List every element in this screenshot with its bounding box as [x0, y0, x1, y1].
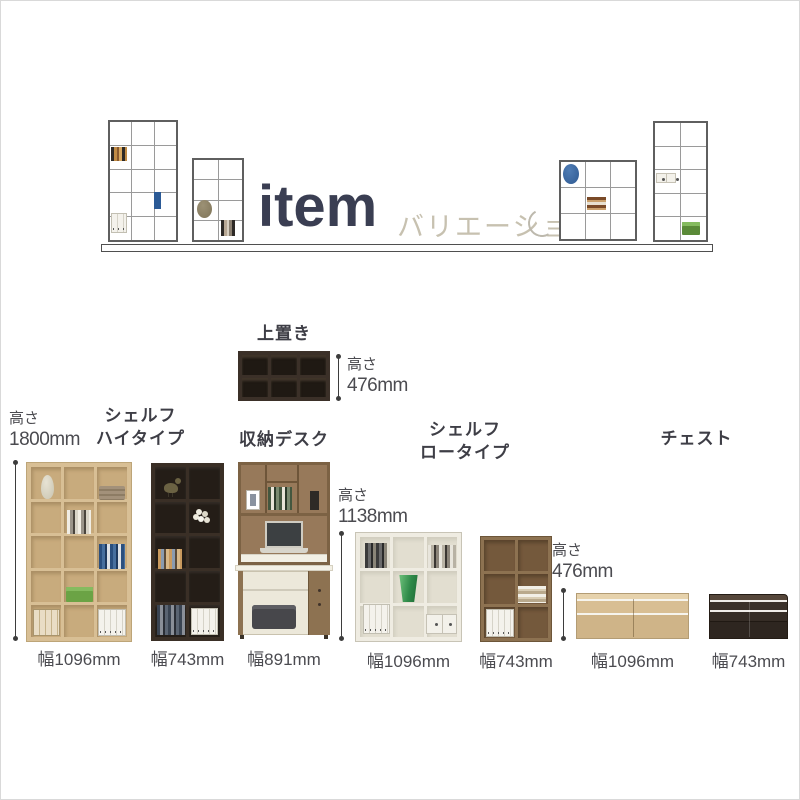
decor-books-icon	[365, 543, 387, 568]
product-image-shelf-high-narrow	[151, 463, 224, 641]
product-title-top-unit: 上置き	[238, 323, 330, 346]
shelf-cell	[64, 536, 94, 568]
shelf-cell	[242, 378, 268, 398]
shelf-cell	[64, 605, 94, 637]
shelf-cell	[655, 123, 680, 146]
decor-book-icon	[154, 192, 161, 209]
shelf-cell	[155, 571, 186, 603]
decor-binders-icon	[111, 213, 127, 233]
decor-binders-icon	[191, 608, 218, 635]
shelf-cell	[155, 122, 176, 145]
decor-boxes-icon	[656, 173, 676, 183]
shelf-cell	[360, 571, 390, 602]
desk-shelf-line	[241, 513, 327, 516]
shelf-cell	[219, 180, 243, 199]
width-label-chest-narrow: 幅743mm	[706, 647, 791, 672]
decor-boxes-icon	[426, 614, 457, 634]
dimension-label-chest-height: 高さ 476mm	[552, 543, 613, 582]
shelf-cell	[31, 536, 61, 568]
decor-greenbox-icon	[66, 587, 93, 602]
brand-title: item	[258, 178, 377, 236]
dimension-label-shelf-high-height: 高さ 1800mm	[9, 411, 80, 450]
decor-books-icon	[221, 220, 235, 236]
product-image-chest-narrow	[709, 594, 788, 639]
shelf-cell	[271, 378, 297, 398]
desk-left-panel	[238, 571, 243, 635]
decor-books-icon	[99, 544, 125, 569]
shelf-cell	[681, 147, 706, 170]
decor-basket-icon	[99, 486, 125, 500]
shelf-cell	[189, 571, 220, 603]
shelf-cell	[655, 147, 680, 170]
shelf-cell	[132, 122, 153, 145]
shelf-cell	[300, 378, 326, 398]
product-title-shelf-low: シェルフ ロータイプ	[399, 419, 531, 465]
dimension-label-shelf-low-height: 高さ 1138mm	[338, 488, 408, 527]
shelf-cell	[681, 194, 706, 217]
shelf-cell	[561, 188, 585, 213]
decor-stack-icon	[518, 586, 546, 603]
shelf-cell	[655, 194, 680, 217]
width-label-shelf-high-wide: 幅1096mm	[25, 645, 133, 670]
title-line1: シェルフ	[105, 406, 177, 425]
shelf-cell	[393, 606, 423, 637]
decor-vase-icon	[41, 475, 54, 499]
decor-vase-icon	[197, 200, 212, 218]
decor-bird-icon	[164, 483, 178, 493]
shelf-cell	[300, 355, 326, 375]
shelf-cell	[484, 540, 515, 571]
shelf-cell	[31, 571, 61, 603]
decor-stack-icon	[587, 197, 606, 210]
shelf-cell	[132, 217, 153, 240]
width-label-shelf-low-narrow: 幅743mm	[478, 647, 554, 672]
shelf-cell	[110, 170, 131, 193]
product-image-desk	[238, 462, 330, 640]
shelf-cell	[681, 123, 706, 146]
product-image-chest-wide	[576, 593, 689, 639]
shelf-cell	[681, 170, 706, 193]
shelf-cell	[132, 193, 153, 216]
product-title-shelf-high: シェルフ ハイタイプ	[73, 405, 208, 451]
height-value: 1138mm	[338, 507, 408, 528]
width-label-shelf-high-narrow: 幅743mm	[149, 645, 226, 670]
shelf-cell	[189, 467, 220, 499]
shelf-cell	[611, 162, 635, 187]
shelf-cell	[155, 170, 176, 193]
desk-divider	[265, 481, 299, 483]
decor-binder-icon	[310, 491, 319, 510]
shelf-cell	[31, 502, 61, 534]
shelf-cell	[427, 571, 457, 602]
decor-books-icon	[157, 605, 185, 635]
product-image-top-unit	[238, 351, 330, 401]
desk-feet	[238, 635, 330, 639]
height-value: 1800mm	[9, 430, 80, 451]
shelf-cell	[194, 180, 218, 199]
decor-binders-icon	[98, 609, 126, 636]
title-line1: シェルフ	[429, 420, 501, 439]
height-value: 476mm	[552, 562, 613, 583]
shelf-cell	[189, 536, 220, 568]
shelf-cell	[155, 146, 176, 169]
decor-binders-icon	[363, 604, 390, 634]
shelf-cell	[132, 170, 153, 193]
shelf-cell	[194, 160, 218, 179]
shelf-cell	[393, 537, 423, 568]
product-title-desk: 収納デスク	[226, 429, 342, 452]
decor-books-icon	[67, 510, 91, 534]
shelf-cell	[110, 122, 131, 145]
desk-pullout-surface	[241, 554, 327, 562]
decor-flowers-icon	[196, 509, 202, 515]
shelf-cell	[194, 221, 218, 240]
width-label-chest-wide: 幅1096mm	[573, 647, 692, 672]
decor-shelf-grid-2	[192, 158, 244, 242]
title-line2: ロータイプ	[420, 443, 510, 462]
decor-books-icon	[158, 549, 182, 569]
height-label: 高さ	[338, 488, 408, 505]
decor-binders-icon	[486, 609, 514, 637]
width-label-shelf-low-wide: 幅1096mm	[352, 647, 465, 672]
shelf-cell	[64, 467, 94, 499]
product-image-shelf-high-wide	[27, 463, 131, 641]
shelf-cell	[611, 214, 635, 239]
decor-books-icon	[428, 545, 456, 568]
decor-greenbox-icon	[682, 222, 700, 235]
dimension-line-chest-height	[563, 590, 564, 639]
desk-divider	[297, 465, 299, 513]
product-image-shelf-low-wide	[356, 533, 461, 641]
shelf-cell	[155, 217, 176, 240]
decor-binders-icon	[33, 609, 60, 636]
dimension-line-shelf-high-height	[15, 462, 16, 639]
decor-books-icon	[268, 487, 292, 510]
desk-divider	[265, 465, 267, 513]
shelf-cell	[518, 540, 549, 571]
product-image-shelf-low-narrow	[481, 537, 551, 641]
shelf-cell	[561, 214, 585, 239]
shelf-cell	[97, 502, 127, 534]
shelf-cell	[586, 214, 610, 239]
decor-picture-frame-icon	[246, 490, 260, 510]
product-title-chest: チェスト	[639, 428, 754, 451]
printer-icon	[252, 605, 296, 629]
shelf-cell	[132, 146, 153, 169]
height-label: 高さ	[347, 357, 408, 374]
item-variation-banner: item バリエーション 上置き 高さ 476mm 高さ 1800mm シェルフ…	[0, 0, 800, 800]
decor-books-icon	[111, 147, 127, 161]
desk-side-cabinet	[308, 571, 330, 635]
decor-vase-icon	[563, 164, 579, 184]
shelf-cell	[97, 571, 127, 603]
title-line2: ハイタイプ	[96, 429, 185, 448]
dimension-line-top-unit-height	[338, 356, 339, 399]
shelf-cell	[155, 502, 186, 534]
height-value: 476mm	[347, 376, 408, 397]
shelf-cell	[586, 162, 610, 187]
shelf-cell	[242, 355, 268, 375]
shelf-cell	[484, 574, 515, 605]
laptop-base	[260, 548, 308, 553]
shelf-cell	[219, 201, 243, 220]
width-label-desk: 幅891mm	[236, 645, 332, 670]
dimension-line-shelf-low-height	[341, 533, 342, 639]
shelf-cell	[189, 502, 220, 534]
shelf-cell	[271, 355, 297, 375]
dimension-label-top-unit-height: 高さ 476mm	[347, 357, 408, 396]
desk-shelf-line	[243, 589, 308, 591]
shelf-cell	[219, 160, 243, 179]
desk-hutch	[238, 462, 330, 565]
height-label: 高さ	[552, 543, 613, 560]
shelf-cell	[611, 188, 635, 213]
header-divider-bar	[101, 244, 713, 252]
shelf-cell	[518, 607, 549, 638]
shelf-cell	[655, 217, 680, 240]
height-label: 高さ	[9, 411, 80, 428]
laptop-icon	[265, 521, 303, 548]
